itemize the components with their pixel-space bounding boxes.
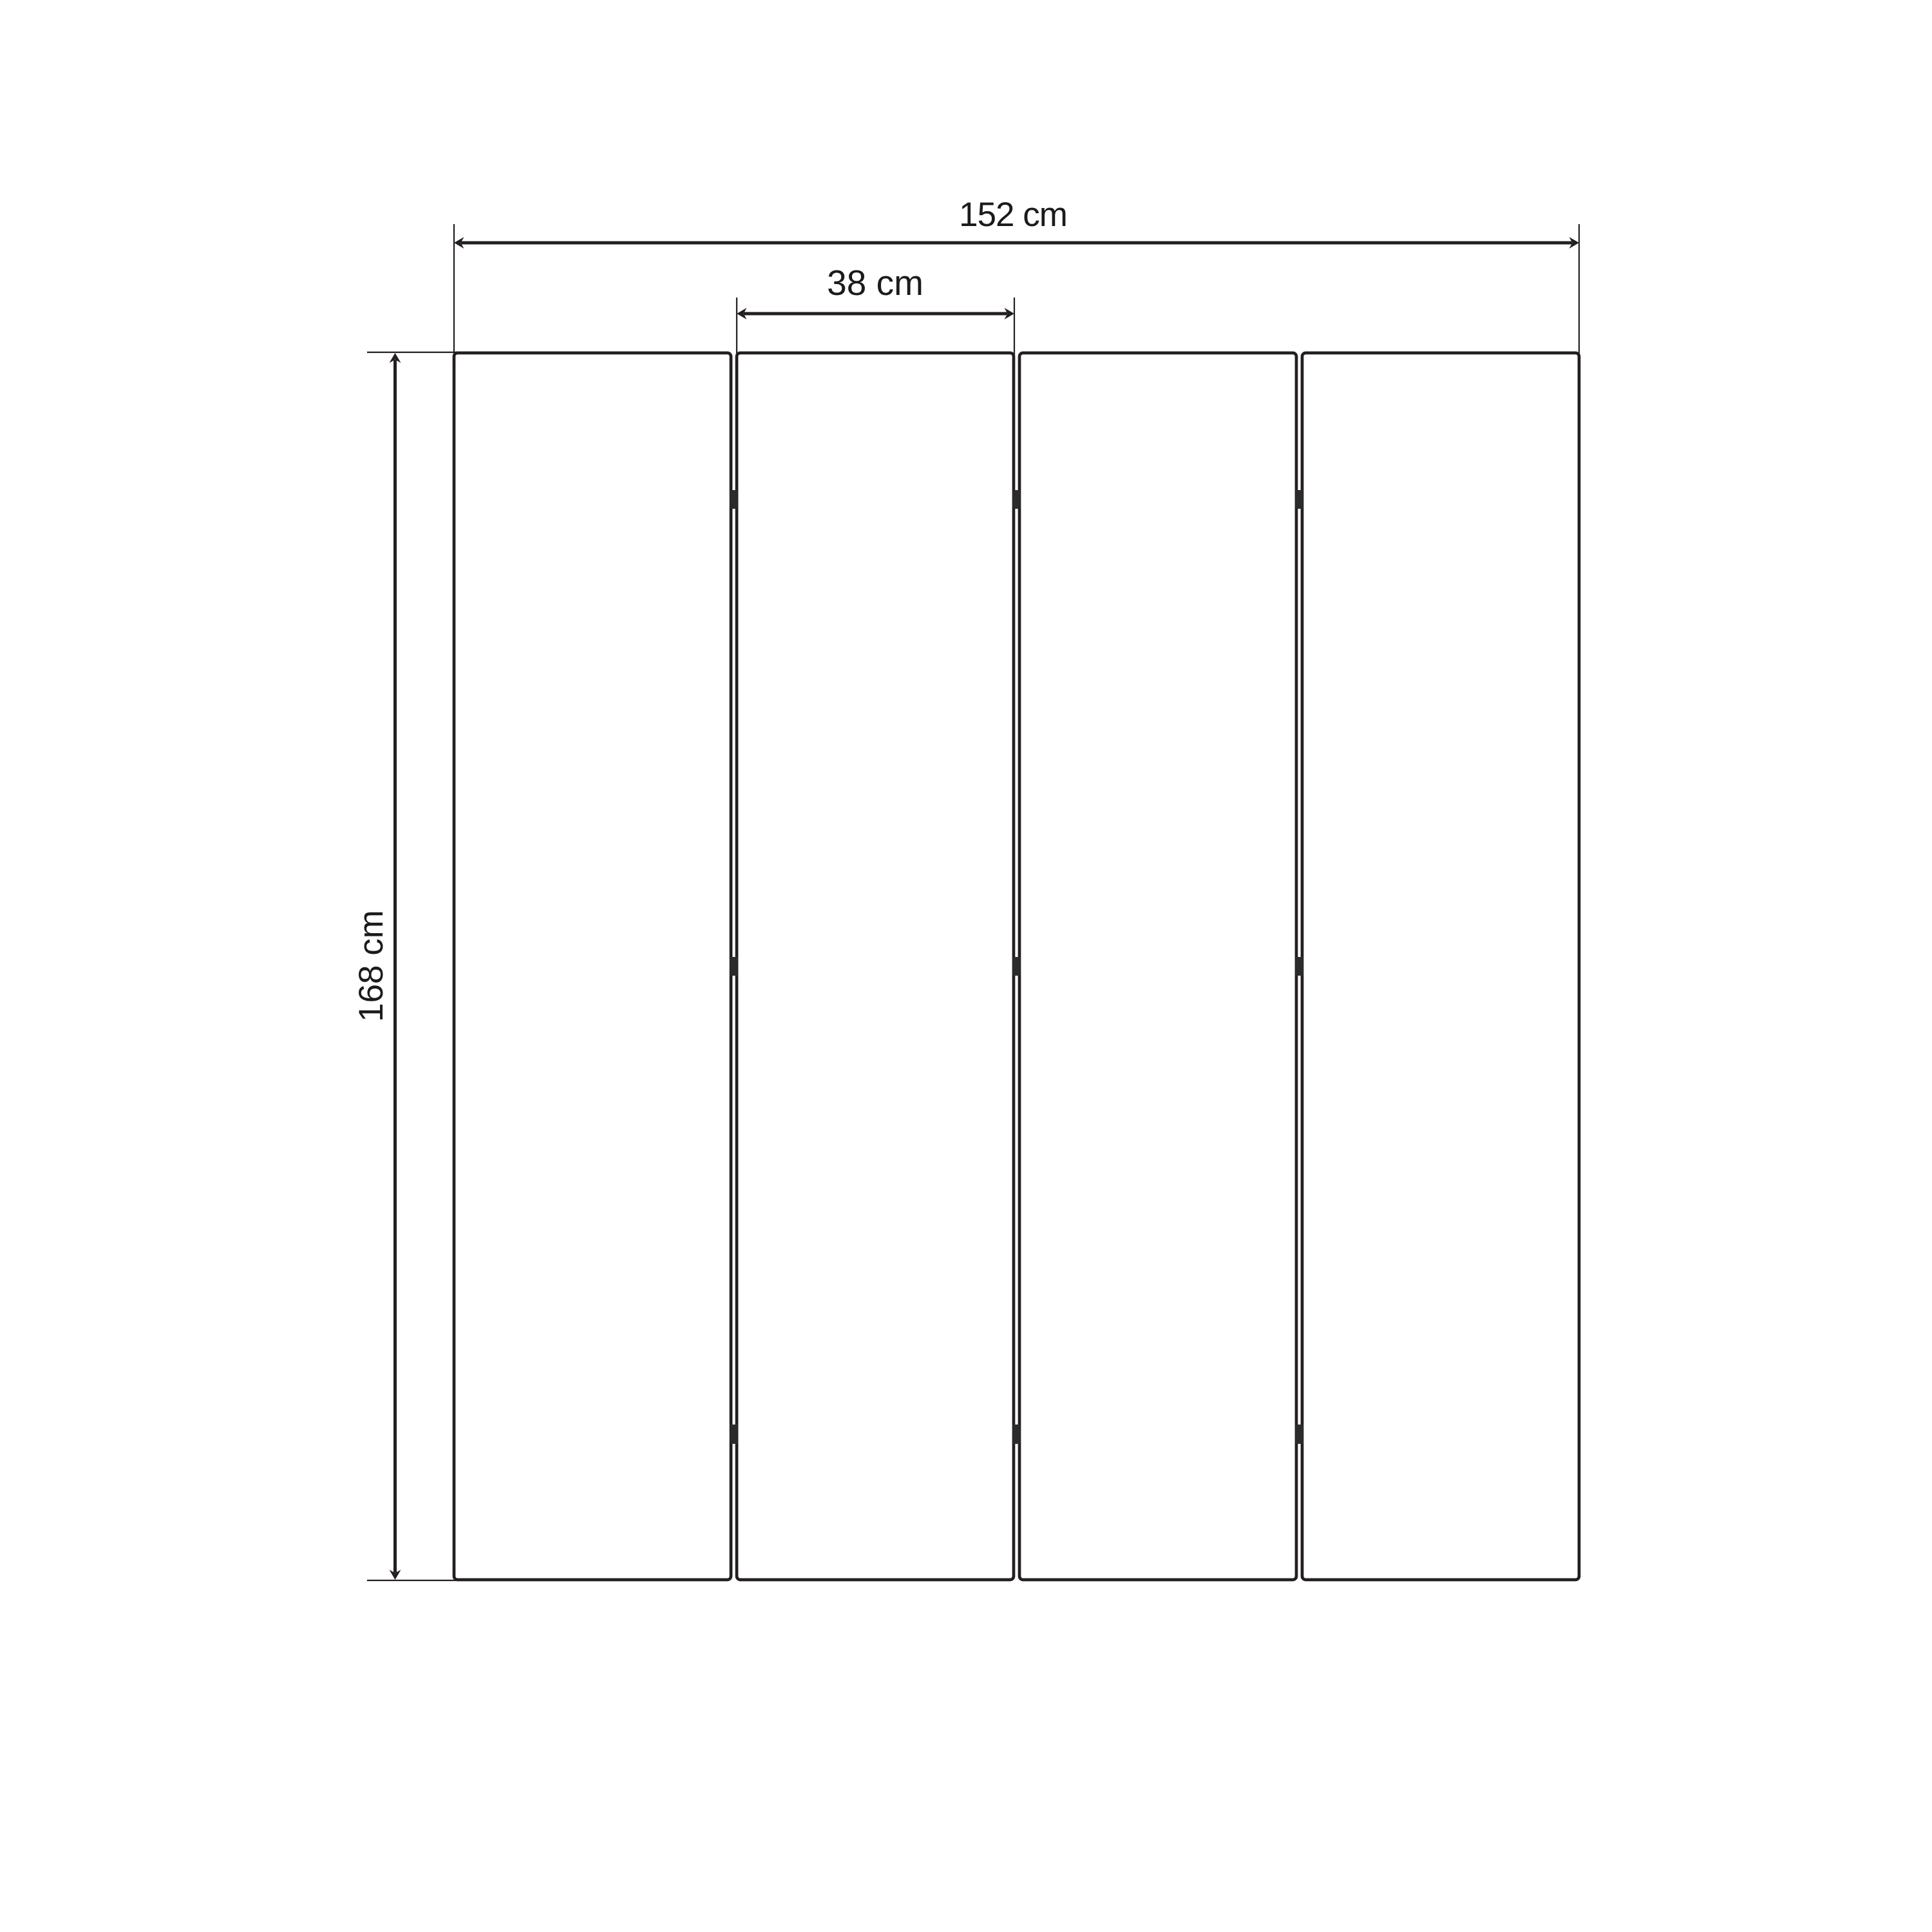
svg-text:168 cm: 168 cm <box>352 910 390 1022</box>
svg-text:152 cm: 152 cm <box>959 196 1067 234</box>
svg-text:38 cm: 38 cm <box>827 263 923 303</box>
